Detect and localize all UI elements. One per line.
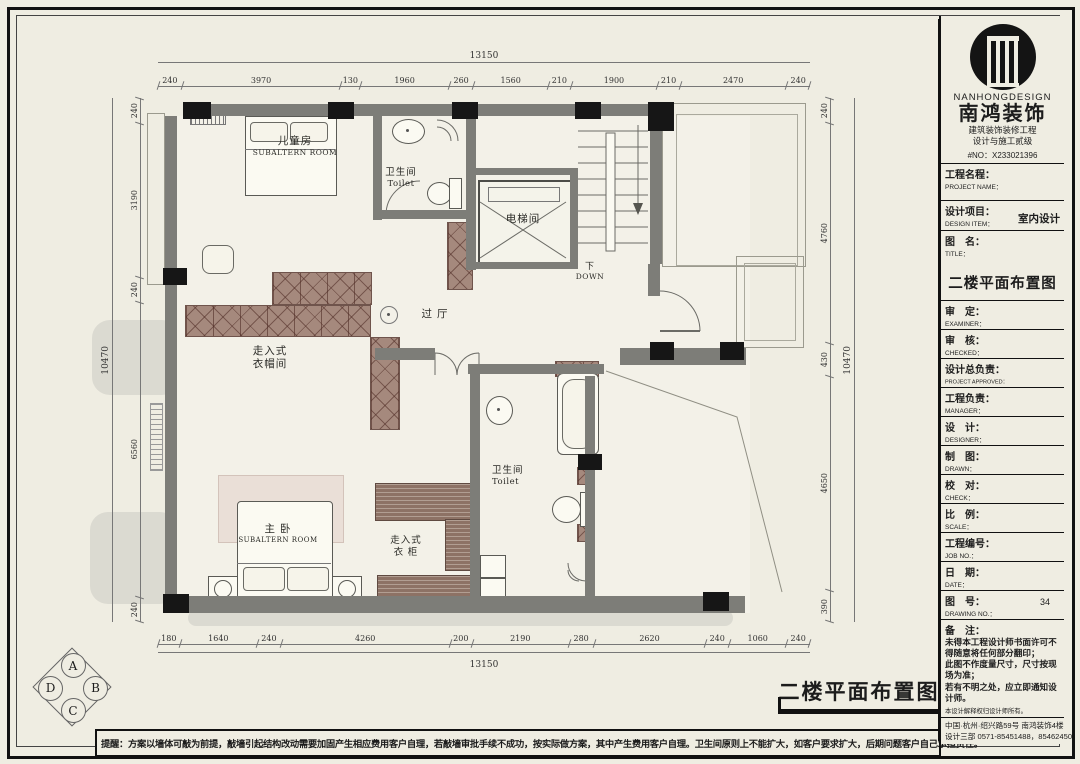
compass-letter: B <box>91 681 100 695</box>
room-name: 电梯间 <box>478 213 568 226</box>
wall-segment <box>375 210 475 219</box>
field-check: 校 对：CHECK： <box>941 475 1064 504</box>
dim-segment: 200 <box>450 630 472 644</box>
reminder-text: 提醒：方案以墙体可敲为前提，敲墙引起结构改动需要加固产生相应费用客户自理，若敲墙… <box>97 736 983 750</box>
dim-segment: 240 <box>126 597 140 622</box>
field-value: 室内设计 <box>1018 211 1060 226</box>
dim-segment: 3970 <box>182 72 341 86</box>
reminder-strip: 提醒：方案以墙体可敲为前提，敲墙引起结构改动需要加固产生相应费用客户自理，若敲墙… <box>95 729 941 757</box>
wall-segment <box>466 116 476 270</box>
room-name: 卫生间 <box>368 167 434 179</box>
wall-segment <box>468 168 578 175</box>
compass-b: B <box>83 676 108 701</box>
wall-segment <box>165 116 177 608</box>
field-label-en: CHECKED： <box>945 347 1060 357</box>
nanhong-logo-icon <box>970 24 1036 90</box>
field-label-en: DRAWN： <box>945 463 1060 473</box>
dim-segment: 260 <box>449 72 473 86</box>
field-label-en: JOB NO.： <box>945 550 1060 560</box>
room-name-en: Toilet <box>492 477 556 488</box>
dim-segment: 3190 <box>126 123 140 277</box>
column <box>328 102 354 119</box>
dim-left-total: 10470 <box>100 98 113 622</box>
field-date: 日 期：DATE： <box>941 562 1064 591</box>
compass-c: C <box>61 698 86 723</box>
dim-bottom-segments: 18016402404260200219028026202401060240 <box>158 630 810 645</box>
dim-segment: 240 <box>786 630 810 644</box>
field-project-approved: 设计总负责：PROJECT APPROVED： <box>941 359 1064 388</box>
wall-segment <box>650 116 662 264</box>
dim-right-segments: 24047604304650390 <box>816 98 831 622</box>
field-label-en: CHECK： <box>945 492 1060 502</box>
drawing-number: 34 <box>1040 597 1050 607</box>
dim-top-segments: 24039701301960260156021019002102470240 <box>158 72 810 87</box>
drawing-stamp: 二楼平面布置图 <box>778 676 940 714</box>
room-name-en: SUBALTERN ROOM <box>240 148 350 157</box>
room-label-master: 主 卧 SUBALTERN ROOM <box>238 523 318 545</box>
stamp-underline <box>778 709 940 714</box>
field-drawn: 制 图：DRAWN： <box>941 446 1064 475</box>
floor-plan: 儿童房 SUBALTERN ROOM 卫生间 Toilet 电梯间 下 DOWN… <box>140 95 820 635</box>
remark-line: 未得本工程设计师书面许可不得随意将任何部分翻印； <box>945 637 1060 659</box>
field-scale: 比 例：SCALE： <box>941 504 1064 533</box>
field-label-en: EXAMINER： <box>945 318 1060 328</box>
dim-segment: 2620 <box>594 630 706 644</box>
dim-segment: 4760 <box>816 123 830 342</box>
dim-segment: 2470 <box>680 72 786 86</box>
dim-segment: 180 <box>158 630 180 644</box>
dim-segment: 240 <box>786 72 810 86</box>
dim-segment: 6560 <box>126 302 140 596</box>
compass-letter: D <box>46 681 56 695</box>
wall-segment <box>468 262 578 269</box>
field-design-item: 设计项目： DESIGN ITEM： 室内设计 <box>941 201 1064 231</box>
cert-line2: 设计与施工贰级 <box>945 136 1060 147</box>
room-label-closet: 走入式 衣 柜 <box>378 535 434 559</box>
remark-line: 若有不明之处，应立即通知设计师。 <box>945 682 1060 704</box>
field-label-en: SCALE： <box>945 521 1060 531</box>
column <box>163 594 189 613</box>
brand-en: NANHONGDESIGN <box>945 92 1060 103</box>
drawing-sheet: 儿童房 SUBALTERN ROOM 卫生间 Toilet 电梯间 下 DOWN… <box>0 0 1080 764</box>
drawing-title-value: 二楼平面布置图 <box>945 272 1060 293</box>
field-designer: 设 计：DESIGNER： <box>941 417 1064 446</box>
field-label-cn: 设计项目： <box>945 203 995 218</box>
wall-segment <box>570 168 578 269</box>
dim-bottom-total: 13150 <box>158 652 810 671</box>
field-label-cn: 工程名程： <box>945 166 1060 181</box>
room-name-en: SUBALTERN ROOM <box>238 536 318 545</box>
field-checked: 审 核：CHECKED： <box>941 330 1064 359</box>
room-name: 过 厅 <box>400 308 470 321</box>
dim-segment: 1640 <box>180 630 258 644</box>
field-label-en: DESIGN ITEM： <box>945 218 995 228</box>
room-name2: 衣帽间 <box>235 358 305 371</box>
room-label-elevator: 电梯间 <box>478 213 568 226</box>
stairs-down-cn: 下 <box>565 261 615 272</box>
column <box>163 268 187 285</box>
wall-segment <box>470 364 480 596</box>
field-label-cn: 校 对： <box>945 477 1060 492</box>
field-label-cn: 设 计： <box>945 419 1060 434</box>
field-label-cn: 工程编号： <box>945 535 1060 550</box>
compass-d: D <box>38 676 63 701</box>
dim-segment: 430 <box>816 343 830 376</box>
room-name: 走入式 <box>235 345 305 358</box>
field-label-cn: 制 图： <box>945 448 1060 463</box>
field-label-en: PROJECT APPROVED： <box>945 377 1043 386</box>
field-label-cn: 审 核： <box>945 332 1060 347</box>
field-label-cn: 工程负责： <box>945 390 1060 405</box>
dim-segment: 240 <box>257 630 281 644</box>
dim-segment: 240 <box>705 630 729 644</box>
dim-segment: 210 <box>657 72 680 86</box>
dim-segment: 4650 <box>816 376 830 591</box>
dim-segment: 240 <box>816 98 830 123</box>
dim-segment: 1060 <box>729 630 786 644</box>
room-name: 走入式 <box>378 535 434 547</box>
stairs-down-arrow <box>633 203 643 215</box>
field-label-cn: 比 例： <box>945 506 1060 521</box>
field-label-cn: 日 期： <box>945 564 1060 579</box>
dim-segment: 2190 <box>472 630 569 644</box>
compass-letter: A <box>69 659 78 673</box>
column <box>650 342 674 360</box>
room-name: 卫生间 <box>492 465 556 477</box>
dim-segment: 1560 <box>473 72 548 86</box>
wall-segment <box>165 596 745 613</box>
column <box>648 102 674 131</box>
column <box>703 592 729 611</box>
column <box>452 102 478 119</box>
dim-segment: 210 <box>548 72 571 86</box>
orientation-compass: A B C D <box>34 649 110 725</box>
field-label-en: MANAGER： <box>945 405 1060 415</box>
wall-segment <box>648 264 660 296</box>
stairs-down-en: DOWN <box>565 272 615 281</box>
dim-right-total: 10470 <box>842 98 855 622</box>
company-address: 中国·杭州·绍兴路59号 南鸿装饰4楼 <box>945 720 1060 731</box>
company-phone: 设计三部 0571-85451488，85462450 <box>945 731 1060 742</box>
dim-segment: 240 <box>158 72 182 86</box>
field-remark: 备 注： 未得本工程设计师书面许可不得随意将任何部分翻印； 此图不作度量尺寸，尺… <box>941 620 1064 718</box>
column <box>183 102 211 119</box>
field-label-en: PROJECT NAME： <box>945 181 1060 191</box>
field-examiner: 审 定：EXAMINER： <box>941 301 1064 330</box>
room-label-cloakroom: 走入式 衣帽间 <box>235 345 305 371</box>
title-block-logo-section: NANHONGDESIGN 南鸿装饰 建筑装饰装修工程 设计与施工贰级 #NO：… <box>941 16 1064 164</box>
field-project-name: 工程名程： PROJECT NAME： <box>941 164 1064 201</box>
dim-segment: 130 <box>340 72 360 86</box>
column-glyph-icon <box>987 36 1019 87</box>
cert-line1: 建筑装饰装修工程 <box>945 125 1060 136</box>
field-drawing-no: 图 号：DRAWING NO.：34 <box>941 591 1064 620</box>
compass-letter: C <box>68 704 77 718</box>
room-label-kids: 儿童房 SUBALTERN ROOM <box>240 135 350 158</box>
brand-cn: 南鸿装饰 <box>945 103 1060 125</box>
compass-a: A <box>61 653 86 678</box>
field-label-cn: 审 定： <box>945 303 1060 318</box>
wall-segment <box>585 376 595 596</box>
room-label-toilet-top: 卫生间 Toilet <box>368 167 434 190</box>
dim-segment: 1900 <box>571 72 658 86</box>
dim-left-segments: 24031902406560240 <box>126 98 141 622</box>
field-label-en: DRAWING NO.： <box>945 608 1060 618</box>
stamp-title: 二楼平面布置图 <box>778 676 940 706</box>
column <box>720 342 744 360</box>
title-block: NANHONGDESIGN 南鸿装饰 建筑装饰装修工程 设计与施工贰级 #NO：… <box>939 16 1064 744</box>
room-label-hall: 过 厅 <box>400 308 470 321</box>
field-label-en: DATE： <box>945 579 1060 589</box>
room-name2: 衣 柜 <box>378 547 434 559</box>
field-label-cn: 设计总负责： <box>945 361 1060 376</box>
room-name: 主 卧 <box>238 523 318 536</box>
column <box>578 454 602 470</box>
room-label-toilet-low: 卫生间 Toilet <box>492 465 556 488</box>
field-job-no: 工程编号：JOB NO.： <box>941 533 1064 562</box>
field-address: 中国·杭州·绍兴路59号 南鸿装饰4楼 设计三部 0571-85451488，8… <box>941 718 1064 744</box>
field-label-en: TITLE： <box>945 248 1060 258</box>
dim-segment: 240 <box>126 98 140 123</box>
remark-line: 此图不作度量尺寸，尺寸按现场为准； <box>945 659 1060 681</box>
wall-segment <box>375 348 435 360</box>
field-label-cn: 备 注： <box>945 622 1060 637</box>
dim-segment: 390 <box>816 590 830 622</box>
field-label-en: DESIGNER： <box>945 434 1060 444</box>
field-manager: 工程负责：MANAGER： <box>941 388 1064 417</box>
cert-number: #NO：X233021396 <box>945 150 1060 161</box>
dim-segment: 240 <box>126 277 140 302</box>
room-label-down: 下 DOWN <box>565 261 615 282</box>
field-drawing-title: 图 名： TITLE： 二楼平面布置图 <box>941 231 1064 301</box>
dim-segment: 4260 <box>281 630 450 644</box>
room-name-en: Toilet <box>368 179 434 190</box>
dim-top-total: 13150 <box>158 44 810 63</box>
remark-small: 本设计解释权归设计师所有。 <box>945 706 1060 715</box>
field-label-cn: 图 名： <box>945 233 1060 248</box>
room-name: 儿童房 <box>240 135 350 148</box>
dim-segment: 280 <box>569 630 594 644</box>
column <box>575 102 601 119</box>
wall-segment <box>468 364 604 374</box>
dim-segment: 1960 <box>360 72 449 86</box>
